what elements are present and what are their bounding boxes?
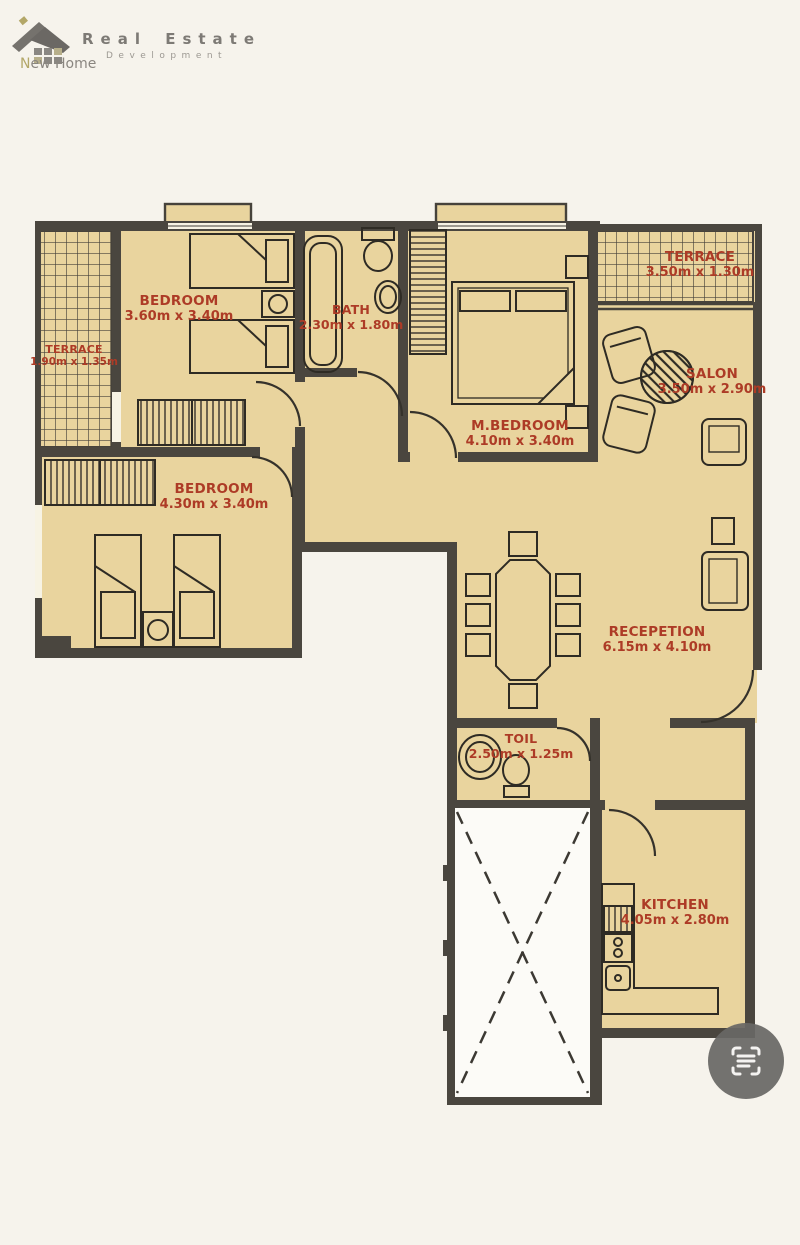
wall-ledges <box>165 204 566 223</box>
room-label-master-bedroom: M.BEDROOM 4.10m x 3.40m <box>466 418 575 450</box>
room-label-bath: BATH 2.30m x 1.80m <box>299 302 404 332</box>
scan-icon <box>727 1042 765 1080</box>
floor-plan <box>0 0 800 1245</box>
room-label-reception: RECEPETION 6.15m x 4.10m <box>603 624 712 656</box>
room-label-bedroom-left: BEDROOM 4.30m x 3.40m <box>160 481 269 513</box>
room-label-terrace-left: TERRACE 1.90m x 1.35m <box>30 343 118 369</box>
room-label-kitchen: KITCHEN 4.05m x 2.80m <box>621 897 730 929</box>
room-label-toilet: TOIL 2.50m x 1.25m <box>469 731 574 761</box>
room-label-terrace-right: TERRACE 3.50m x 1.30m <box>646 249 755 281</box>
page: Real Estate Development New Home <box>0 0 800 1245</box>
void-shaft <box>455 808 590 1097</box>
room-label-salon: SALON 3.50m x 2.90m <box>658 366 767 398</box>
scan-button[interactable] <box>708 1023 784 1099</box>
room-label-bedroom-top: BEDROOM 3.60m x 3.40m <box>125 293 234 325</box>
